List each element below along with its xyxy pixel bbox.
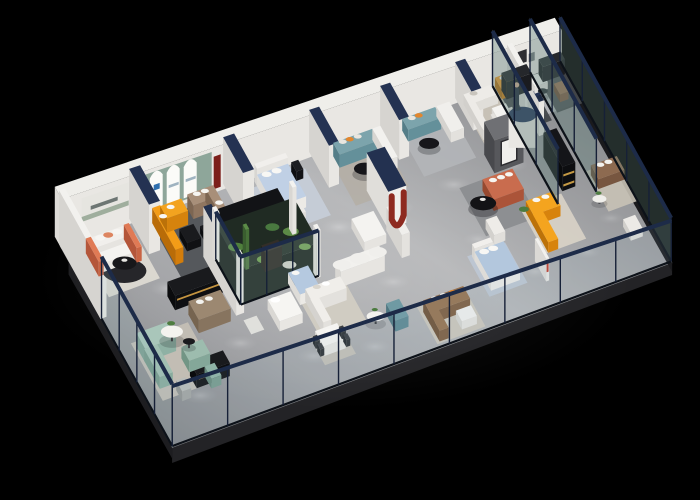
table-decor bbox=[480, 198, 486, 201]
pillow bbox=[479, 249, 489, 255]
pillow bbox=[541, 195, 549, 199]
pillow bbox=[346, 137, 354, 141]
pillow bbox=[470, 91, 478, 95]
pillow bbox=[167, 205, 175, 209]
pillow bbox=[488, 246, 498, 252]
pillow bbox=[201, 189, 209, 193]
curved-partition-bump bbox=[333, 260, 351, 270]
curved-partition-bump bbox=[350, 253, 370, 264]
side-table-black bbox=[183, 338, 195, 345]
showroom-render-canvas bbox=[0, 0, 700, 500]
pillow bbox=[215, 200, 223, 204]
pillow bbox=[159, 214, 167, 218]
sofa-orange-arch-l-front bbox=[175, 247, 183, 265]
pillow bbox=[596, 163, 604, 167]
pillow bbox=[193, 192, 201, 196]
pillow bbox=[205, 296, 213, 300]
aquarium-pillar-side bbox=[212, 207, 216, 263]
plant-small bbox=[372, 308, 378, 311]
pillow bbox=[292, 271, 300, 275]
aquarium-pillar-side bbox=[289, 182, 293, 235]
pillow bbox=[262, 172, 272, 178]
light-pool bbox=[598, 212, 624, 224]
showroom-svg bbox=[0, 0, 700, 500]
pillow bbox=[196, 300, 204, 304]
sofa-coral-arm-right-front bbox=[137, 246, 142, 262]
pillow bbox=[408, 116, 416, 120]
pillow bbox=[112, 229, 122, 235]
pillow bbox=[505, 172, 513, 176]
plant-vase bbox=[167, 321, 175, 325]
plant-floor bbox=[519, 206, 529, 212]
light-pool bbox=[223, 335, 257, 350]
display-rack-gold-front bbox=[562, 162, 575, 191]
pillow bbox=[532, 198, 540, 202]
pillow bbox=[415, 113, 423, 117]
pillow bbox=[339, 140, 347, 144]
aquarium-plant bbox=[265, 223, 279, 231]
red-door-slot bbox=[214, 154, 221, 189]
pillow bbox=[489, 178, 497, 182]
pillow bbox=[604, 160, 612, 164]
light-pool bbox=[321, 219, 357, 235]
pillow bbox=[272, 168, 282, 174]
pillow bbox=[103, 232, 113, 238]
pillow bbox=[497, 175, 505, 179]
coffee-table-oval bbox=[112, 256, 136, 269]
arch-feature-curve-front bbox=[402, 232, 410, 258]
table-round-white bbox=[161, 326, 183, 338]
pillow bbox=[354, 134, 362, 138]
light-pool bbox=[377, 275, 409, 289]
side-table-small bbox=[592, 195, 606, 203]
aquarium-pillar-front bbox=[293, 186, 297, 235]
curved-partition-bump bbox=[369, 247, 387, 257]
pillow bbox=[270, 297, 280, 303]
pillow bbox=[313, 285, 321, 289]
coffee-table-round bbox=[419, 138, 439, 149]
table-decor bbox=[121, 259, 127, 262]
pillow bbox=[322, 281, 330, 285]
